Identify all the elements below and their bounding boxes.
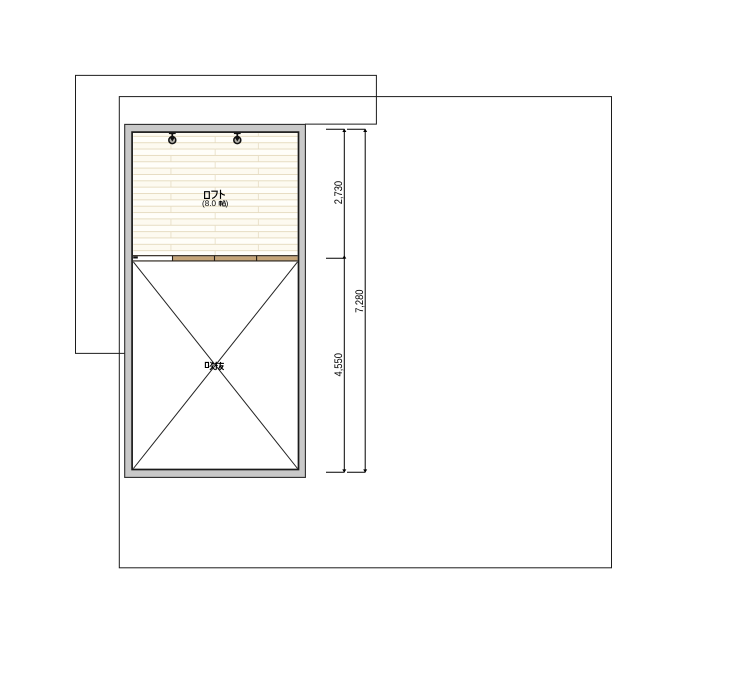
svg-text:7,280: 7,280: [354, 289, 366, 312]
svg-text:(8.0: (8.0: [202, 199, 217, 208]
svg-text:): ): [226, 199, 229, 208]
svg-text:4,550: 4,550: [333, 353, 345, 376]
svg-text:2,730: 2,730: [333, 181, 345, 204]
